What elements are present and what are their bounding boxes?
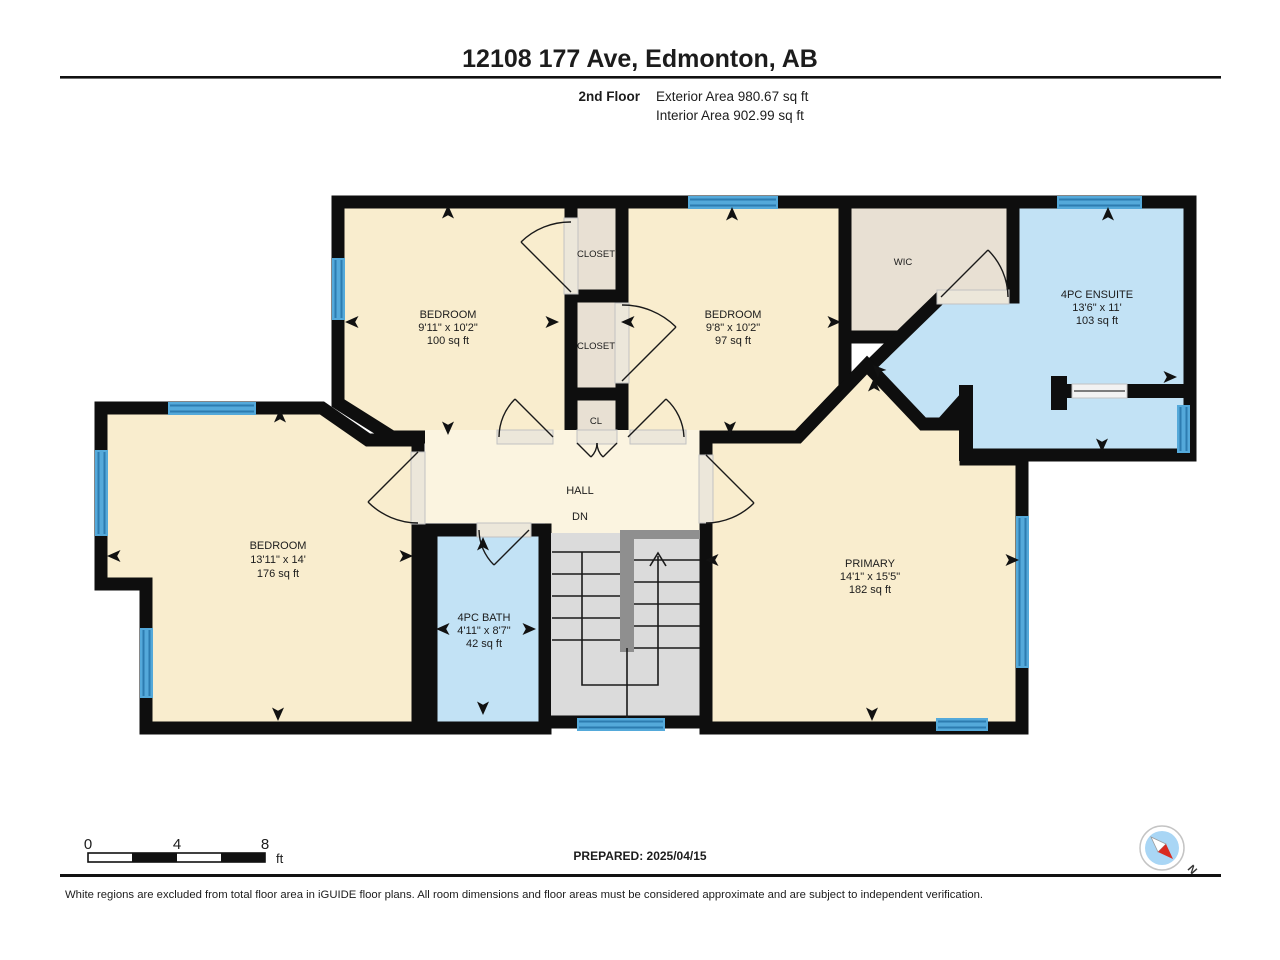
exterior-area: Exterior Area 980.67 sq ft [656, 89, 809, 104]
stair-railing [620, 530, 634, 652]
label-hall: HALL [566, 485, 594, 497]
floor-plan-page: 12108 177 Ave, Edmonton, AB 2nd Floor Ex… [0, 0, 1280, 960]
header-rule [60, 76, 1221, 79]
page-title: 12108 177 Ave, Edmonton, AB [462, 45, 818, 73]
floor-plan: BEDROOM 9'11" x 10'2" 100 sq ft BEDROOM … [95, 196, 1190, 731]
label-closet-small: CL [590, 416, 602, 427]
label-bedroom-top-right: BEDROOM [705, 309, 762, 321]
svg-text:13'6" x 11': 13'6" x 11' [1072, 302, 1122, 314]
label-closet-lower: CLOSET [577, 341, 615, 352]
svg-text:9'8" x 10'2": 9'8" x 10'2" [706, 322, 760, 334]
svg-text:9'11" x 10'2": 9'11" x 10'2" [418, 322, 478, 334]
svg-text:182 sq ft: 182 sq ft [849, 584, 891, 596]
label-wic: WIC [894, 257, 913, 268]
window [332, 258, 345, 320]
scale-tick-4: 4 [173, 836, 181, 853]
scale-unit: ft [276, 851, 284, 866]
window [1057, 196, 1142, 209]
svg-text:103 sq ft: 103 sq ft [1076, 315, 1118, 327]
floor-label: 2nd Floor [579, 89, 641, 104]
label-primary: PRIMARY [845, 558, 896, 570]
disclaimer: White regions are excluded from total fl… [65, 889, 983, 901]
svg-text:176 sq ft: 176 sq ft [257, 568, 299, 580]
svg-text:97 sq ft: 97 sq ft [715, 335, 751, 347]
label-ensuite: 4PC ENSUITE [1061, 289, 1133, 301]
svg-text:14'1" x 15'5": 14'1" x 15'5" [840, 571, 900, 583]
scale-tick-0: 0 [84, 836, 92, 853]
scale-tick-8: 8 [261, 836, 269, 853]
sliding-door [1072, 384, 1127, 398]
interior-area: Interior Area 902.99 sq ft [656, 108, 804, 123]
label-closet-upper: CLOSET [577, 249, 615, 260]
footer-rule [60, 874, 1221, 877]
window [140, 628, 153, 698]
scale-bar: 0 4 8 ft [84, 836, 284, 866]
window [688, 196, 778, 209]
svg-text:4'11" x 8'7": 4'11" x 8'7" [457, 625, 510, 637]
svg-text:13'11" x 14': 13'11" x 14' [250, 554, 306, 566]
window [95, 450, 108, 536]
compass: N [1140, 826, 1199, 877]
window [577, 718, 665, 731]
label-stairs-dn: DN [572, 511, 588, 523]
label-bedroom-top-left: BEDROOM [420, 309, 477, 321]
window [168, 402, 256, 415]
svg-text:100 sq ft: 100 sq ft [427, 335, 469, 347]
prepared-date: PREPARED: 2025/04/15 [573, 849, 707, 863]
window [936, 718, 988, 731]
label-bath: 4PC BATH [458, 612, 511, 624]
svg-text:42 sq ft: 42 sq ft [466, 638, 502, 650]
window [1016, 516, 1029, 668]
room-hall [425, 430, 710, 537]
window [1177, 405, 1190, 453]
label-bedroom-left: BEDROOM [250, 540, 307, 552]
floor-plan-svg: 12108 177 Ave, Edmonton, AB 2nd Floor Ex… [0, 0, 1280, 960]
